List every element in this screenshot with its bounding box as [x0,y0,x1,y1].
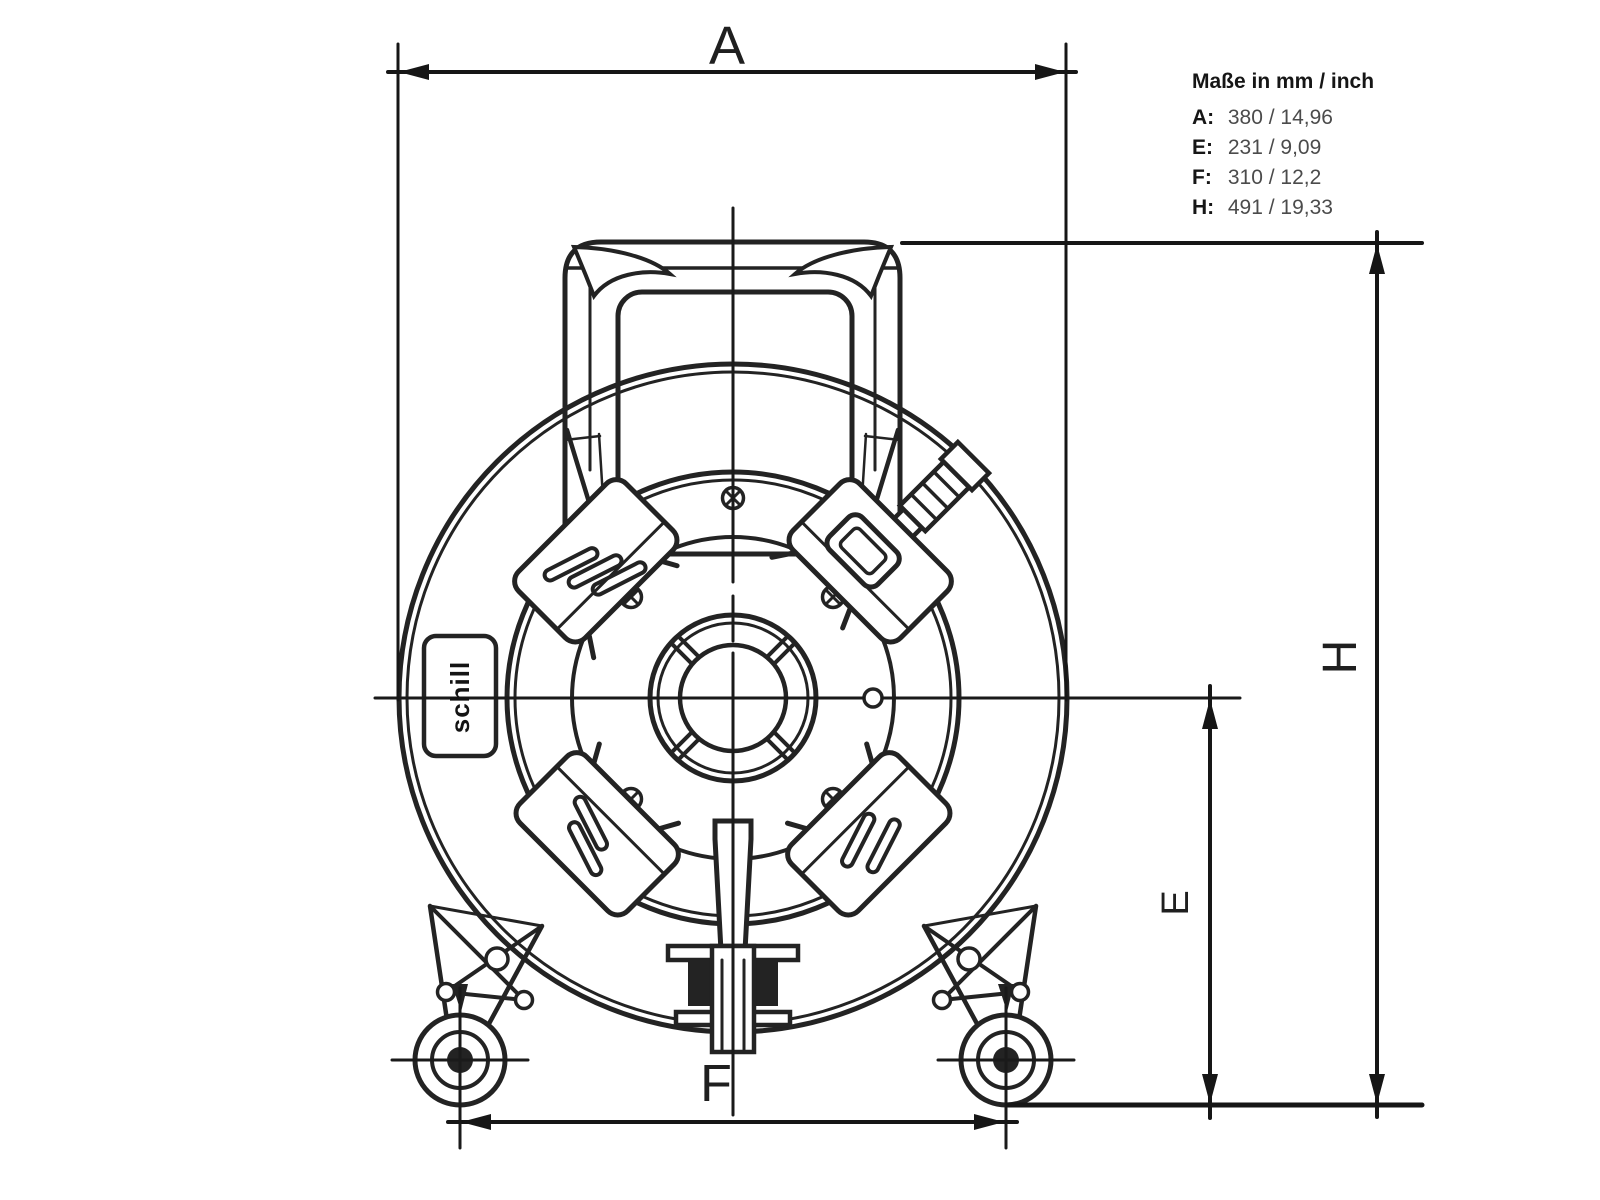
legend-row-value: 491 / 19,33 [1228,196,1333,219]
legend-row-value: 380 / 14,96 [1228,106,1333,129]
legend-row: H: 491 / 19,33 [1192,193,1452,223]
dimension-label-f: F [700,1058,732,1110]
dimension-label-a: A [709,19,745,73]
handle-grip-wing-right [795,247,891,296]
legend-row-label: A: [1192,103,1222,133]
legend-row-label: E: [1192,133,1222,163]
dimension-label-h: H [1317,640,1365,675]
legend-row: E: 231 / 9,09 [1192,133,1452,163]
brand-logo-text: schill [447,661,473,733]
bracket-block-right [754,962,778,1006]
connector-module-upper-left [509,474,697,662]
dimension-label-e: E [1157,890,1195,915]
bracket-block-left [688,962,712,1006]
face-hole [864,689,882,707]
legend-row: F: 310 / 12,2 [1192,163,1452,193]
dimension-e [1202,686,1218,1118]
legend-row-label: F: [1192,163,1222,193]
legend-row: A: 380 / 14,96 [1192,103,1452,133]
centerlines [375,208,1240,1148]
connector-module-lower-left [510,734,697,921]
dimension-legend: Maße in mm / inch A: 380 / 14,96 E: 231 … [1192,70,1452,223]
handle-grip-wing-left [574,247,670,296]
legend-row-label: H: [1192,193,1222,223]
dimension-h [902,232,1422,1117]
cable-reel-technical-drawing: A F H E schill Maße in mm / inch A: 380 … [0,0,1600,1200]
legend-row-value: 231 / 9,09 [1228,136,1321,159]
connector-module-lower-right [769,734,956,921]
legend-row-value: 310 / 12,2 [1228,166,1321,189]
legend-title: Maße in mm / inch [1192,70,1452,94]
